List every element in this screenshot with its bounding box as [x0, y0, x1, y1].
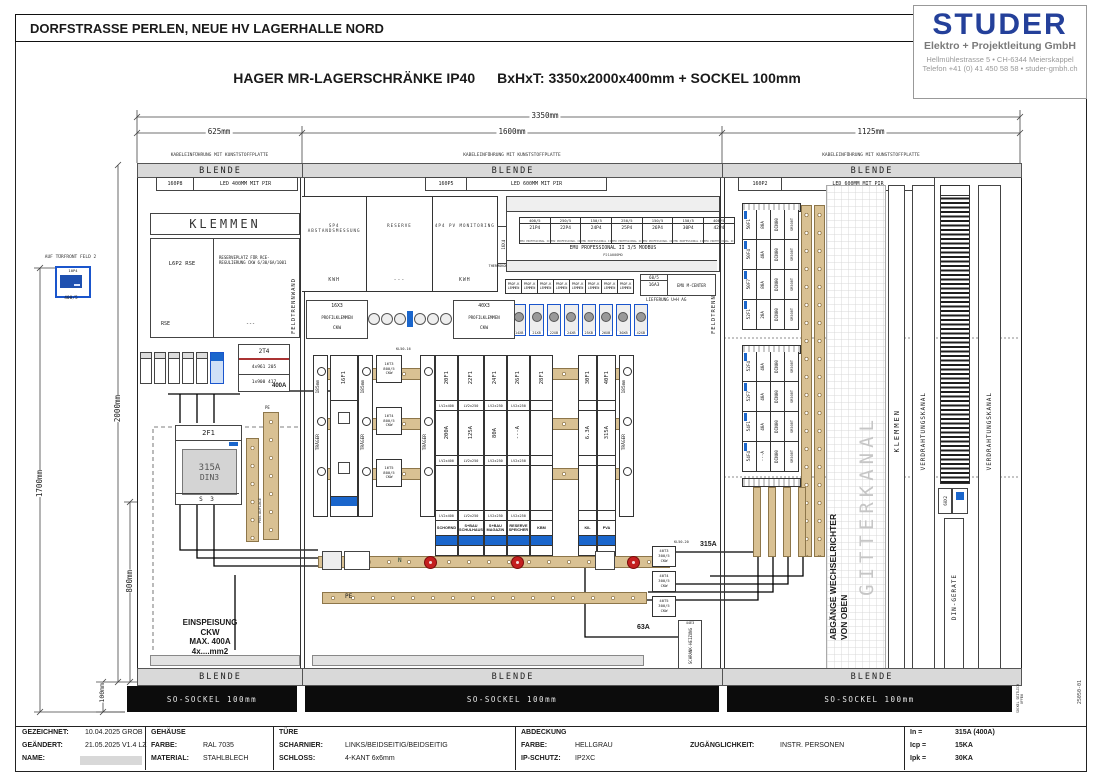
ct-stack-left: 16T3 800/5 CKW 16T4 800/5 CKW 16T5 800/5…	[376, 355, 416, 515]
xb-terminal: 21XB	[529, 304, 543, 336]
dim-height-low: 800mm	[123, 570, 136, 593]
busbar-pe	[322, 592, 647, 604]
meter-footer: EMU PROFESSIONAL II	[612, 240, 642, 243]
xb-terminal-label: 42XB	[635, 331, 647, 335]
in-label: In =	[910, 729, 922, 736]
xb-terminal: 22XB	[547, 304, 561, 336]
din-fuse-module: 52F7 40A DIN00 SR508T	[742, 382, 799, 412]
energy-meter: 250/5 25P4 EMU PROFESSIONAL II	[612, 217, 643, 244]
tuere-header: TÜRE	[279, 729, 298, 736]
xb-terminal: 42XB	[634, 304, 648, 336]
ct-owner: CKW	[386, 423, 393, 428]
einspeisung-line: EINSPEISUNG	[160, 618, 260, 628]
label-315a: 315A	[700, 541, 717, 548]
terminal-screw-icon	[618, 312, 628, 322]
feeder-fuse-type	[531, 511, 552, 521]
busbar-cover-blue	[579, 536, 596, 546]
busbar-cover-blue	[485, 536, 506, 546]
terminal-strip-column	[940, 185, 970, 484]
kwh-box: SP4 ABSTANDSMESSUNG KWH	[302, 196, 367, 292]
meter-ct-ratio: 400/5	[520, 218, 550, 224]
logo-line1: Elektro + Projektleitung GmbH	[914, 40, 1086, 52]
meter-id: 26P4	[652, 226, 663, 231]
klemmen-strip: KLEMMEN	[888, 185, 905, 677]
energy-meter: 150/5 30P4 EMU PROFESSIONAL II	[673, 217, 704, 244]
kabel-note-1: KABELEINFÜHRUNG MIT KUNSTSTOFFPLATTE	[137, 153, 302, 158]
energy-meter: 400/5 21P4 EMU PROFESSIONAL II	[520, 217, 551, 244]
dim-total-width: 3350mm	[529, 111, 560, 120]
main-switch-id: 16F1	[341, 371, 347, 384]
terminal-screw-icon	[549, 312, 559, 322]
din-module-id: 52F4	[747, 361, 752, 371]
meter-id: 24P4	[591, 226, 602, 231]
feeder-name: SCHORND	[436, 521, 457, 536]
blende-bottom-1: BLENDE	[137, 668, 304, 686]
din-device	[952, 488, 968, 514]
scharnier-label: SCHARNIER:	[279, 742, 323, 749]
duct-bar-field2	[312, 655, 644, 666]
feeder-amp: ---A	[515, 426, 521, 439]
emu-meter-panel: 400/5 21P4 EMU PROFESSIONAL II 250/5 22P…	[506, 196, 720, 272]
icp-value: 15KA	[955, 742, 973, 749]
light-desc-1: LED 400MM MIT PIR	[194, 178, 297, 190]
profilklemmen-left: 16X3 PROFILKLEMMEN CKW	[306, 300, 368, 339]
einspeisung-note: EINSPEISUNGCKWMAX. 400A4x....mm2	[160, 618, 260, 656]
busbar-cover-blue	[436, 536, 457, 546]
xb-terminal-label: 30XB	[617, 331, 629, 335]
busbar-insulator-icon	[511, 556, 524, 569]
name-redaction	[80, 756, 142, 765]
feeder-id: 40F1	[604, 371, 610, 384]
din-geraete-label: DIN-GERÄTE	[951, 574, 958, 620]
din-module-mount: SR508T	[790, 360, 794, 373]
label-63a: 63A	[637, 624, 650, 631]
din-module-type: DIN00	[775, 450, 780, 463]
schloss-value: 4-KANT 6x6mm	[345, 755, 395, 762]
din-module-id: 50F1	[747, 219, 752, 229]
logo-block: STUDER Elektro + Projektleitung GmbH Hel…	[913, 5, 1087, 99]
feeder-fuse-type: LV2x250	[459, 511, 483, 521]
meter-footer: EMU PROFESSIONAL II	[520, 240, 550, 243]
traeger-rail-1: 185mm TRÄGER	[313, 355, 328, 517]
ipk-label: Ipk =	[910, 755, 926, 762]
sockel-2: SO-SOCKEL 100mm	[305, 686, 719, 712]
verdrahtungskanal-1-label: VERDRAHTUNGSKANAL	[920, 392, 927, 470]
busbar-insulator-icon	[627, 556, 640, 569]
farbe-value: RAL 7035	[203, 742, 234, 749]
feeder-column: 24F1 LV2x250 80A LV2x250 LV2x250 S+BAU M…	[484, 355, 507, 556]
sockel-note-wrap: SOCKEL SEITLICH OFFEN	[1014, 684, 1026, 714]
schloss-label: SCHLOSS:	[279, 755, 315, 762]
din-module-amp: 80A	[761, 281, 766, 289]
current-transformer: 16T3 800/5 CKW	[376, 355, 402, 383]
feeder-fuse-type: LV2x250	[508, 456, 529, 466]
meter-footer: EMU PROFESSIONAL II	[643, 240, 673, 243]
din-group-1: 50F1 80A DIN00 SR508T 50F4 40A DIN00 SR5…	[742, 210, 799, 330]
prof-klemmen-cell: PROF-KLEMMEN	[538, 279, 554, 294]
profilklemmen-right-id: 40X3	[454, 301, 514, 312]
kwh-box-sub: KWH	[435, 278, 495, 283]
busbar-n	[318, 556, 670, 568]
dim-height-total: 2000mm	[111, 395, 124, 422]
meter-ct-ratio: 150/5	[673, 218, 703, 224]
ct-owner: CKW	[386, 475, 393, 480]
din-module-type: DIN00	[775, 360, 780, 373]
duct-bar-field1	[150, 655, 300, 666]
ct-stack-right: 40T3 300/5 CKW 40T4 300/5 CKW 40T5 300/5…	[652, 546, 676, 616]
profilklemmen-left-name: PROFILKLEMMEN	[307, 312, 367, 323]
busbar-insulator-icon	[424, 556, 437, 569]
mcenter-box: 60/5 16A3 EMU M-CENTER	[640, 274, 716, 296]
riser-rail-2	[814, 205, 825, 557]
feldtrennwand-1: FELDTRENNWAND	[291, 278, 297, 334]
current-transformer: 40T3 300/5 CKW	[652, 546, 676, 567]
ct-owner: CKW	[661, 584, 668, 589]
einspeisung-line: MAX. 400A	[160, 637, 260, 647]
feeder-amp: 200A	[444, 426, 450, 439]
door-meter-note: AUF TÜRFRONT FELD 2	[18, 255, 123, 260]
feeder-fuse-type	[579, 401, 596, 411]
ct-2t4-id: 2T4	[239, 345, 289, 360]
logo-line2: Hellmühlestrasse 5 • CH-6344 Meierskappe…	[914, 55, 1086, 64]
din-fuse-module: 52F1 20A DIN00 SR508T	[742, 300, 799, 330]
prof-klemmen-cell: PROF-KLEMMEN	[522, 279, 538, 294]
drop-rail-2	[768, 487, 776, 557]
feeder-fuse-type: LV2x250	[459, 401, 483, 411]
din-module-type: DIN00	[775, 390, 780, 403]
verdrahtungskanal-1: VERDRAHTUNGSKANAL	[912, 185, 935, 677]
feeder-fuse-type	[598, 401, 615, 411]
pen-note: PEN-AUFLAGE	[257, 498, 262, 523]
meter-ct-ratio: 150/5	[643, 218, 673, 224]
sockel-note: SOCKEL SEITLICH OFFEN	[1016, 684, 1024, 714]
din-module-id: 54F1	[747, 421, 752, 431]
klemmen-box-field1: KLEMMEN	[150, 213, 300, 235]
din-fuse-module: 50F4 40A DIN00 SR508T	[742, 240, 799, 270]
prof-klemmen-cell: PROF-KLEMMEN	[618, 279, 634, 294]
mcenter-id: 16A3	[641, 283, 667, 288]
feeder-name: RESERVE SPEICHER	[508, 521, 529, 536]
ct-2t4-row1: 4x961 205	[239, 360, 289, 374]
small-fuse-row	[140, 352, 224, 384]
xb-terminal-label: 21XB	[530, 331, 542, 335]
din-module-id: 52F1	[747, 309, 752, 319]
kwh-box-title: 4P4 PV MONITORING	[435, 223, 495, 228]
feeder-columns-a: 20F1 LV2x400 200A LV2x400 LV2x400 SCHORN…	[435, 355, 553, 556]
din-module-type: DIN00	[775, 218, 780, 231]
din-module-amp: 80A	[761, 221, 766, 229]
din-module-mount: SR508T	[790, 278, 794, 291]
meter-panel-subtitle: P21A000MO	[519, 253, 707, 257]
round-terminal-row	[368, 304, 452, 334]
feeder-fuse-type	[531, 401, 552, 411]
terminal-screw-icon	[636, 312, 646, 322]
din-module-mount: SR508T	[790, 420, 794, 433]
rse-bottom-right: ---	[246, 321, 255, 327]
ct-owner: CKW	[661, 609, 668, 614]
kwh-box-title: SP4 ABSTANDSMESSUNG	[304, 223, 364, 233]
din-module-amp: 40A	[761, 393, 766, 401]
feeder-column: 26F1 LV2x250 ---A LV2x250 LV2x250 RESERV…	[507, 355, 530, 556]
sockel-1: SO-SOCKEL 100mm	[127, 686, 297, 712]
name-label: NAME:	[22, 755, 45, 762]
meter-id: 30P4	[683, 226, 694, 231]
kwh-box: 4P4 PV MONITORING KWH	[433, 196, 498, 292]
ct-note-left: KL50-16	[396, 347, 411, 351]
feeder-fuse-type: LV2x250	[459, 456, 483, 466]
current-transformer: 40T5 300/5 CKW	[652, 596, 676, 617]
kabel-note-3: KABELEINFÜHRUNG MIT KUNSTSTOFFPLATTE	[722, 153, 1020, 158]
abdeckung-header: ABDECKUNG	[521, 729, 567, 736]
profilklemmen-right: 40X3 PROFILKLEMMEN CKW	[453, 300, 515, 339]
traeger-label: TRÄGER	[316, 434, 321, 450]
din-module-id: 54F4	[747, 451, 752, 461]
light-id-3: 160P2	[739, 178, 782, 190]
gitterkanal-label: GITTERKANAL	[856, 415, 878, 596]
kwh-box-title: RESERVE	[369, 223, 429, 228]
meter-id: 22P4	[560, 226, 571, 231]
xb-terminal-label: 22XB	[548, 331, 560, 335]
kwh-box-sub: KWH	[304, 278, 364, 283]
breaker-id: 2F1	[176, 426, 241, 441]
busbar-pe-label: PE	[345, 593, 352, 600]
xb-terminal-label: 24XB	[565, 331, 577, 335]
studer-logo: STUDER	[914, 8, 1086, 42]
rail-pitch-label: 185mm	[361, 380, 366, 394]
pe-rail-label: PE	[265, 405, 270, 410]
subtitle-product: HAGER MR-LAGERSCHRÄNKE IP40	[233, 70, 475, 86]
kwh-box-sub: ---	[369, 278, 429, 283]
gezeichnet-label: GEZEICHNET:	[22, 729, 69, 736]
din-module-amp: 40A	[761, 251, 766, 259]
busbar-cover-blue	[508, 536, 529, 546]
feeder-fuse-type	[598, 456, 615, 466]
breaker-sub: S 3	[176, 493, 239, 504]
din-rail-strip-3	[742, 478, 801, 487]
busbar-cover-blue	[459, 536, 483, 546]
drawing-number: 25050-01	[1077, 680, 1083, 704]
drawing-subtitle: HAGER MR-LAGERSCHRÄNKE IP40 BxHxT: 3350x…	[137, 68, 897, 88]
din-module-amp: 40A	[761, 423, 766, 431]
feeder-fuse-type: LV2x250	[485, 456, 506, 466]
drawing-sheet: DORFSTRASSE PERLEN, NEUE HV LAGERHALLE N…	[0, 0, 1100, 778]
geaendert-value: 21.05.2025 V1.4 LZ	[85, 742, 147, 749]
din-module-amp: ---A	[761, 451, 766, 461]
door-meter-ct: 400/5	[52, 296, 90, 301]
light-id-2: 160P5	[426, 178, 467, 190]
door-meter: 10P4	[55, 266, 91, 298]
abd-farbe-value: HELLGRAU	[575, 742, 613, 749]
terminal-screw-icon	[532, 312, 542, 322]
xb-terminal: 24XB	[564, 304, 578, 336]
drop-rail-3	[783, 487, 791, 557]
feeder-fuse-type: LV2x400	[436, 511, 457, 521]
din-module-mount: SR508T	[790, 390, 794, 403]
device-group-label: 60X2	[943, 496, 948, 506]
din-module-id: 50F7	[747, 279, 752, 289]
blende-top-1: BLENDE	[137, 163, 304, 178]
dim-sockel-height: 100mm	[96, 683, 108, 703]
label-400a: 400A	[272, 383, 286, 389]
in-value: 315A (400A)	[955, 729, 995, 736]
din-module-amp: 40A	[761, 363, 766, 371]
feeder-fuse-type: LV2x250	[485, 511, 506, 521]
terminal-screw-icon	[584, 312, 594, 322]
din-module-mount: SR508T	[790, 248, 794, 261]
heizung-name: SCHRANK-HEIZUNG	[688, 628, 693, 664]
breaker-body: 315A DIN3	[182, 449, 237, 495]
energy-meter: 150/5 24P4 EMU PROFESSIONAL II	[581, 217, 612, 244]
traeger-rail-2: 185mm TRÄGER	[358, 355, 373, 517]
n-bar-connector-2	[344, 551, 370, 570]
meter-footer: EMU PROFESSIONAL II	[551, 240, 581, 243]
ct-owner: CKW	[386, 371, 393, 376]
meter-ct-ratio: 400/5	[704, 218, 734, 224]
scharnier-value: LINKS/BEIDSEITIG/BEIDSEITIG	[345, 742, 448, 749]
mcenter-note: LIEFERUNG U+H AG	[646, 297, 686, 302]
meter-row: 400/5 21P4 EMU PROFESSIONAL II 250/5 22P…	[519, 217, 708, 244]
din-module-type: DIN00	[775, 248, 780, 261]
traeger-label: TRÄGER	[361, 434, 366, 450]
meter-panel-title: EMU PROFESSIONAL II 3/5 MODBUS	[519, 246, 707, 251]
title-bar: DORFSTRASSE PERLEN, NEUE HV LAGERHALLE N…	[15, 14, 915, 42]
din-module-type: DIN00	[775, 420, 780, 433]
current-transformer: 16T5 800/5 CKW	[376, 459, 402, 487]
din-module-type: DIN00	[775, 308, 780, 321]
feeder-fuse-type: LV2x250	[485, 401, 506, 411]
ct-note-right: KL50-20	[674, 540, 689, 544]
feeder-column: 28F1 KBM	[530, 355, 553, 556]
current-transformer: 16T4 800/5 CKW	[376, 407, 402, 435]
blende-bottom-2: BLENDE	[302, 668, 724, 686]
drop-rail-4	[798, 487, 806, 557]
kwh-box: RESERVE ---	[367, 196, 432, 292]
rse-reserve-note: RESERVEPLATZ FÜR RCE-REGULIERUNG CKW 6/3…	[219, 255, 293, 265]
light-id-1: 160P8	[157, 178, 194, 190]
feeder-amp: 315A	[604, 426, 610, 439]
din-geraete-strip: DIN-GERÄTE	[944, 518, 964, 677]
meter-ct-ratio: 250/5	[551, 218, 581, 224]
din-fuse-module: 54F1 40A DIN00 SR508T	[742, 412, 799, 442]
feeder-column: 22F1 LV2x250 125A LV2x250 LV2x250 S+BAU …	[458, 355, 484, 556]
feeder-column: 30F1 6.3A KIL	[578, 355, 597, 556]
icp-label: Icp =	[910, 742, 926, 749]
blende-top-2: BLENDE	[302, 163, 724, 178]
feeder-amp: 80A	[492, 428, 498, 438]
xb-terminal-label: 25XB	[583, 331, 595, 335]
din-fuse-module: 50F1 80A DIN00 SR508T	[742, 210, 799, 240]
feeder-fuse-type	[531, 456, 552, 466]
traeger-label: TRÄGER	[423, 434, 428, 450]
feeder-id: 28F1	[539, 371, 545, 384]
feeder-id: 24F1	[492, 371, 498, 384]
farbe-label: FARBE:	[151, 742, 177, 749]
verdrahtungskanal-2: VERDRAHTUNGSKANAL	[978, 185, 1001, 677]
device-group-box: 60X2	[938, 488, 952, 514]
pen-rail	[246, 438, 259, 542]
blende-top-3: BLENDE	[722, 163, 1022, 178]
rse-id: L6P2 RSE	[153, 261, 211, 267]
geaendert-label: GEÄNDERT:	[22, 742, 63, 749]
xb-terminal: 26XB	[599, 304, 613, 336]
meter-id: 42P4	[713, 226, 724, 231]
feeder-name: KIL	[579, 521, 596, 536]
meter-footer: EMU PROFESSIONAL II	[704, 240, 734, 243]
kabel-note-2: KABELEINFÜHRUNG MIT KUNSTSTOFFPLATTE	[302, 153, 722, 158]
abgaenge-line1: ABGÄNGE WECHSELRICHTER	[828, 340, 838, 640]
klemmen-strip-label: KLEMMEN	[893, 409, 901, 453]
blende-bottom-3: BLENDE	[722, 668, 1022, 686]
meter-id: 25P4	[621, 226, 632, 231]
material-label: MATERIAL:	[151, 755, 189, 762]
feeder-columns-b: 30F1 6.3A KIL 40F1 315A PVA	[578, 355, 616, 556]
din-module-id: 52F7	[747, 391, 752, 401]
energy-meter: 250/5 22P4 EMU PROFESSIONAL II	[551, 217, 582, 244]
zugang-label: ZUGÄNGLICHKEIT:	[690, 742, 754, 749]
light-row-field1: 160P8 LED 400MM MIT PIR	[156, 177, 298, 191]
abgaenge-line2: VON OBEN	[839, 340, 849, 640]
profilklemmen-left-id: 16X3	[307, 301, 367, 312]
feeder-id: 30F1	[585, 371, 591, 384]
din-module-id: 50F4	[747, 249, 752, 259]
meter-footer: EMU PROFESSIONAL II	[581, 240, 611, 243]
xb-terminal-row: 14XB 21XB 22XB 24XB 25XB 26XB 30XB	[512, 304, 648, 335]
verdrahtungskanal-2-label: VERDRAHTUNGSKANAL	[986, 392, 993, 470]
prof-klemmen-cell: PROF-KLEMMEN	[570, 279, 586, 294]
feeder-column: 20F1 LV2x400 200A LV2x400 LV2x400 SCHORN…	[435, 355, 458, 556]
ip-label: IP-SCHUTZ:	[521, 755, 561, 762]
door-meter-id: 10P4	[57, 268, 89, 273]
energy-meter: 400/5 42P4 EMU PROFESSIONAL II	[704, 217, 735, 244]
main-breaker-2f1: 2F1 315A DIN3 S 3	[175, 425, 242, 505]
dim-height-door: 1700mm	[33, 470, 46, 497]
xb-terminal-label: 26XB	[600, 331, 612, 335]
traeger-label: TRÄGER	[622, 434, 627, 450]
einspeisung-line: CKW	[160, 628, 260, 638]
feeder-fuse-type	[598, 511, 615, 521]
gehaeuse-header: GEHÄUSE	[151, 729, 186, 736]
din-group-2: 52F4 40A DIN00 SR508T 52F7 40A DIN00 SR5…	[742, 352, 799, 472]
din-module-mount: SR508T	[790, 308, 794, 321]
breaker-amp: 315A	[199, 463, 221, 473]
meter-ct-ratio: 150/5	[581, 218, 611, 224]
light-row-field2: 160P5 LED 600MM MIT PIR	[425, 177, 607, 191]
abd-farbe-label: FARBE:	[521, 742, 547, 749]
feeder-fuse-type: LV2x400	[436, 456, 457, 466]
rse-bottom-left: RSE	[161, 321, 170, 327]
dim-field3-width: 1125mm	[855, 127, 886, 136]
energy-meter: 150/5 26P4 EMU PROFESSIONAL II	[643, 217, 674, 244]
abgaenge-note: ABGÄNGE WECHSELRICHTER VON OBEN	[828, 340, 854, 640]
feeder-id: 26F1	[515, 371, 521, 384]
terminal-screw-icon	[566, 312, 576, 322]
rail-pitch-label: 185mm	[316, 380, 321, 394]
feeder-amp: 125A	[468, 426, 474, 439]
light-desc-2: LED 600MM MIT PIR	[467, 178, 606, 190]
feeder-fuse-type	[579, 456, 596, 466]
n-bar-connector-1	[322, 551, 342, 570]
field-divider-1a	[300, 163, 301, 684]
breaker-type: DIN3	[200, 473, 219, 482]
mcenter-ct: 60/5	[641, 275, 667, 281]
n-bar-connector-3	[595, 551, 615, 570]
meter-footer: EMU PROFESSIONAL II	[673, 240, 703, 243]
subtitle-dimensions: BxHxT: 3350x2000x400mm + SOCKEL 100mm	[497, 70, 801, 86]
feeder-column: 40F1 315A PVA	[597, 355, 616, 556]
din-module-type: DIN00	[775, 278, 780, 291]
current-transformer: 40T4 300/5 CKW	[652, 571, 676, 592]
feeder-name: S+BAU MAGAZIN	[485, 521, 506, 536]
